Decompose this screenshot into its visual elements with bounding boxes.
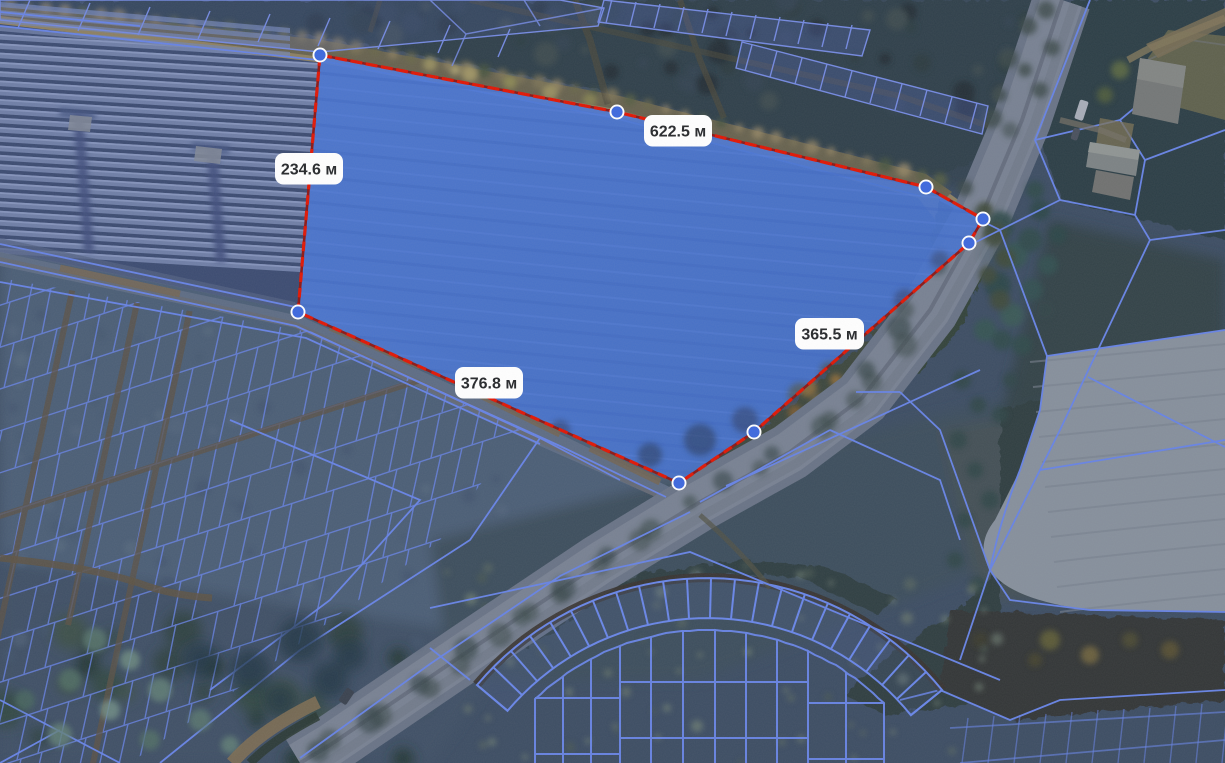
svg-text:376.8 м: 376.8 м — [461, 375, 517, 392]
svg-text:365.5 м: 365.5 м — [801, 326, 857, 343]
svg-text:622.5 м: 622.5 м — [650, 123, 706, 140]
svg-text:234.6 м: 234.6 м — [281, 161, 337, 178]
